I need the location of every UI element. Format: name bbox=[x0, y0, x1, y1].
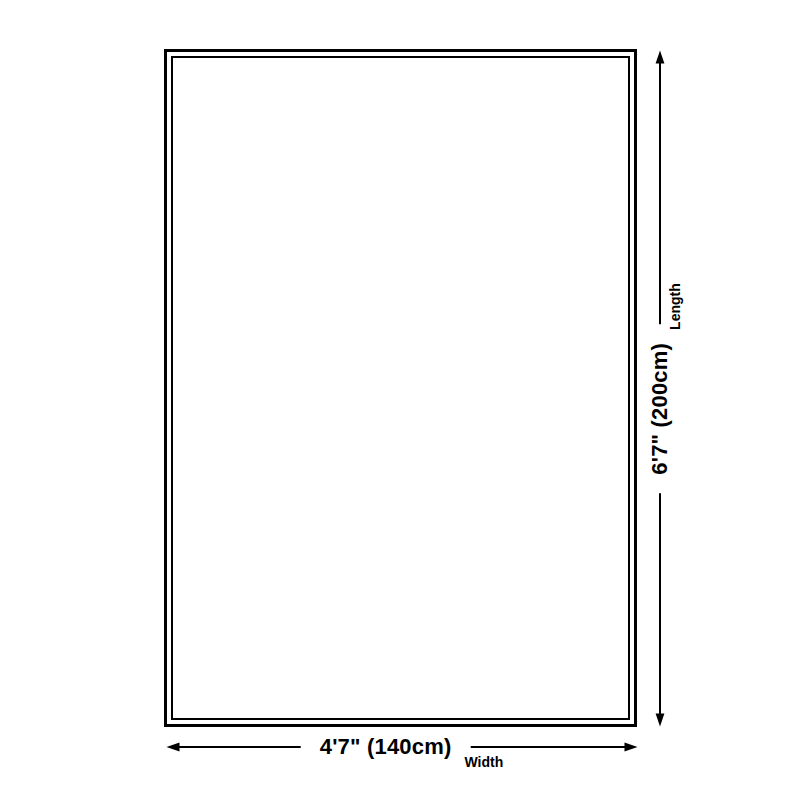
size-diagram: 4'7" (140cm)Width 6'7" (200cm)Length bbox=[0, 0, 800, 800]
product-outline bbox=[164, 49, 637, 727]
length-dimension: 6'7" (200cm)Length bbox=[652, 50, 688, 727]
width-dimension: 4'7" (140cm)Width bbox=[166, 739, 638, 775]
width-value: 4'7" (140cm) bbox=[301, 733, 471, 761]
width-dimension-label: 4'7" (140cm)Width bbox=[301, 733, 504, 761]
length-value: 6'7" (200cm) bbox=[646, 324, 674, 494]
length-label: Length bbox=[667, 283, 683, 330]
width-label: Width bbox=[465, 754, 504, 770]
length-dimension-label: 6'7" (200cm)Length bbox=[646, 283, 674, 493]
product-outline-inner bbox=[171, 56, 630, 720]
